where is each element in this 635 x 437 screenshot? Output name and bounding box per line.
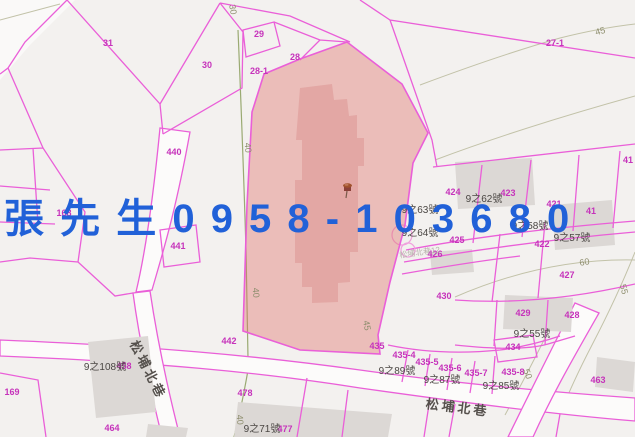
parcel-number-label: 441 [170, 241, 185, 251]
house-number-label: 9之55號 [514, 327, 551, 340]
house-number-label: 9之87號 [424, 373, 461, 386]
parcel-number-label: 29 [254, 29, 264, 39]
parcel-number-label: 434 [505, 342, 520, 352]
parcel-number-label: 423 [500, 188, 515, 198]
parcel-number-label: 442 [221, 336, 236, 346]
house-number-label: 9之57號 [554, 231, 591, 244]
parcel-number-label: 169 [4, 387, 19, 397]
parcel-number-label: 428 [564, 310, 579, 320]
contour-elevation-label: 30 [227, 4, 239, 16]
contour-elevation-label: 45 [361, 320, 373, 332]
parcel-number-label: 435-8 [501, 367, 524, 377]
parcel-number-label: 435-6 [438, 363, 461, 373]
parcel-number-label: 41 [623, 155, 633, 165]
house-number-label: 9之58號 [512, 219, 549, 232]
parcel-number-label: 425 [449, 235, 464, 245]
cadastral-map[interactable]: 3130292828-127-1440168441424423421414142… [0, 0, 635, 437]
house-number-label: 9之64號 [402, 226, 439, 239]
parcel-number-label: 478 [237, 388, 252, 398]
parcel-number-label: 463 [590, 375, 605, 385]
contour-elevation-label: 40 [243, 142, 254, 153]
parcel-number-label: 168 [56, 208, 71, 218]
parcel-number-label: 430 [436, 291, 451, 301]
parcel-number-label: 422 [534, 239, 549, 249]
house-number-label: 9之62號 [466, 192, 503, 205]
parcel-number-label: 31 [103, 38, 113, 48]
parcel-number-label: 464 [104, 423, 119, 433]
parcel-number-label: 421 [546, 199, 561, 209]
house-number-label: 9之63號 [402, 203, 439, 216]
parcel-number-label: 435-4 [392, 350, 415, 360]
parcel-number-label: 28-1 [250, 66, 268, 76]
parcel-number-label: 429 [515, 308, 530, 318]
parcel-number-label: 28 [290, 52, 300, 62]
contour-elevation-label: 40 [235, 414, 246, 425]
contour-elevation-label: 60 [579, 256, 591, 268]
parcel-number-label: 27-1 [546, 38, 564, 48]
parcel-number-label: 427 [559, 270, 574, 280]
house-number-label: 9之89號 [379, 364, 416, 377]
parcel-number-label: 41 [586, 206, 596, 216]
parcel-number-label: 435-7 [464, 368, 487, 378]
parcel-number-label: 435-5 [415, 357, 438, 367]
parcel-number-label: 435 [369, 341, 384, 351]
house-number-label: 9之108號 [84, 360, 126, 373]
contour-elevation-label: 40 [251, 287, 262, 298]
parcel-number-label: 30 [202, 60, 212, 70]
house-number-label: 9之85號 [483, 379, 520, 392]
house-number-label: 9之71號 [244, 422, 281, 435]
parcel-number-label: 440 [166, 147, 181, 157]
parcel-number-label: 424 [445, 187, 460, 197]
